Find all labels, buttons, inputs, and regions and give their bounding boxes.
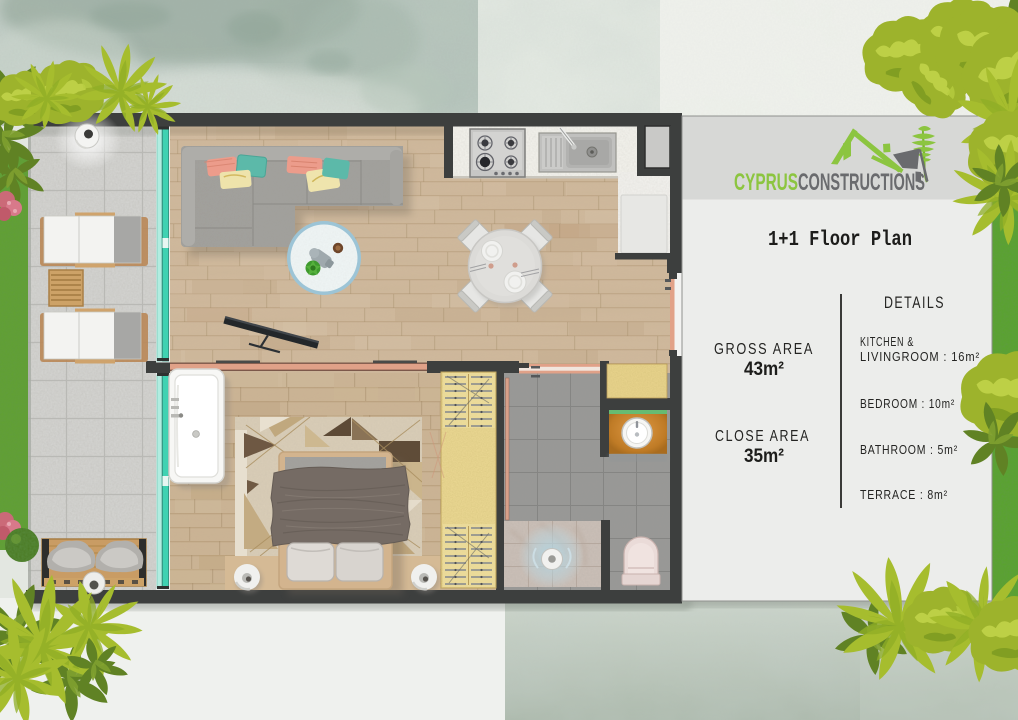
svg-text:TERRACE : 8m²: TERRACE : 8m²: [860, 487, 948, 502]
svg-text:35m²: 35m²: [744, 446, 784, 467]
svg-text:CYPRUS: CYPRUS: [734, 169, 798, 196]
svg-text:GROSS AREA: GROSS AREA: [714, 341, 814, 358]
svg-text:DETAILS: DETAILS: [884, 293, 945, 312]
svg-text:BEDROOM : 10m²: BEDROOM : 10m²: [860, 396, 955, 411]
svg-text:BATHROOM : 5m²: BATHROOM : 5m²: [860, 442, 958, 457]
svg-text:CLOSE AREA: CLOSE AREA: [715, 428, 810, 445]
svg-text:LIVINGROOM : 16m²: LIVINGROOM : 16m²: [860, 349, 980, 364]
svg-text:CONSTRUCTIONS: CONSTRUCTIONS: [798, 169, 925, 196]
svg-text:43m²: 43m²: [744, 359, 784, 380]
svg-text:1+1 Floor Plan: 1+1 Floor Plan: [768, 229, 912, 252]
svg-text:KITCHEN &: KITCHEN &: [860, 334, 914, 349]
